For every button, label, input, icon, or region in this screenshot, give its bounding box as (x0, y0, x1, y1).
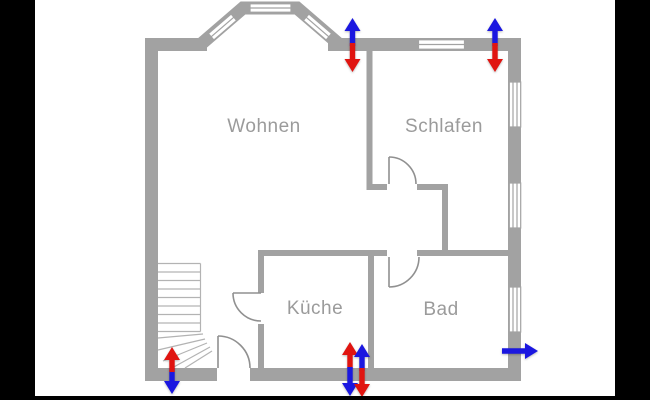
bad-door (389, 257, 419, 287)
room-label-wohnen: Wohnen (227, 116, 300, 138)
letterbox-left-bar (0, 0, 35, 400)
entrance-door (218, 336, 250, 368)
wall-bad-top (417, 250, 508, 256)
exhaust-up-arrow-icon (354, 344, 370, 371)
room-label-bad: Bad (423, 299, 458, 321)
schlafen-top-window-icon (419, 40, 465, 49)
wall-bottom-right-segment (250, 368, 521, 381)
wall-wohnen-schlafen (367, 51, 373, 190)
wall-kueche-bad-divider (368, 250, 374, 368)
doors (218, 157, 419, 368)
staircase (158, 264, 212, 369)
wall-kueche-left-upper (258, 250, 264, 293)
wall-kueche-left-lower (258, 324, 264, 368)
schlafen-right-window-upper-icon (509, 82, 520, 127)
letterbox-bottom-bar (0, 396, 650, 400)
wall-schlafen-door-stub (367, 184, 388, 190)
floor-plan-drawing (0, 0, 650, 400)
letterbox-right-bar (615, 0, 650, 400)
room-label-kueche: Küche (287, 298, 343, 320)
wall-left (145, 38, 158, 381)
bay-window (200, 4, 340, 45)
outer-walls (145, 38, 521, 381)
airflow-arrows (164, 18, 538, 397)
interior-walls (258, 51, 508, 368)
wall-hall-right (442, 184, 448, 256)
room-label-schlafen: Schlafen (405, 116, 483, 138)
schlafen-right-window-lower-icon (509, 183, 520, 228)
bad-right-window-icon (509, 287, 520, 332)
kueche-door (233, 293, 261, 321)
floor-plan-frame: Wohnen Schlafen Küche Bad (0, 0, 650, 400)
wall-bottom-left-segment (145, 368, 217, 381)
wall-kueche-top (258, 250, 387, 256)
schlafen-door (389, 157, 416, 184)
